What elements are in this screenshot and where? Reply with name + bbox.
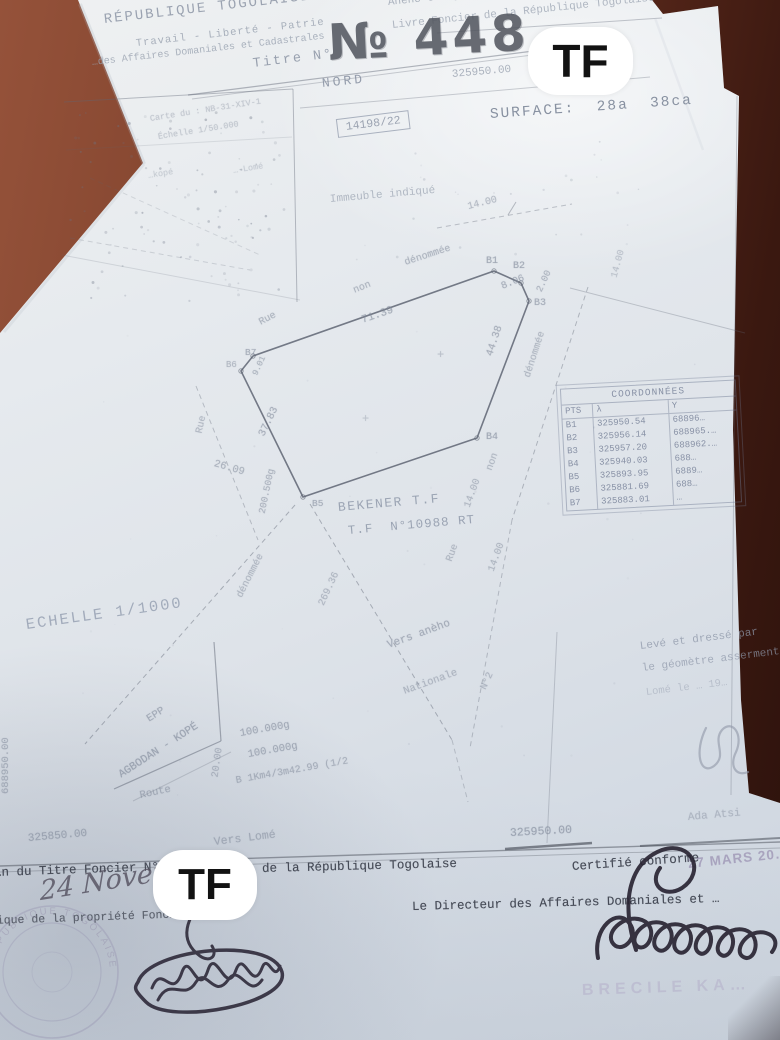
tf-badge-text: TF [552, 34, 608, 88]
signature-surveyor [700, 726, 748, 773]
tf-watermark-badge-bottom: TF [153, 850, 257, 920]
tf-badge-text: TF [178, 860, 232, 910]
tf-watermark-badge-top: TF [528, 27, 633, 95]
table-corner-shadow [728, 976, 780, 1040]
signature-director [597, 848, 775, 958]
signatures-layer [0, 0, 780, 1040]
photographed-land-title-document: RÉPUBLIQUE TOGOLAISE Carte du : NB-31-XI… [0, 0, 780, 1040]
